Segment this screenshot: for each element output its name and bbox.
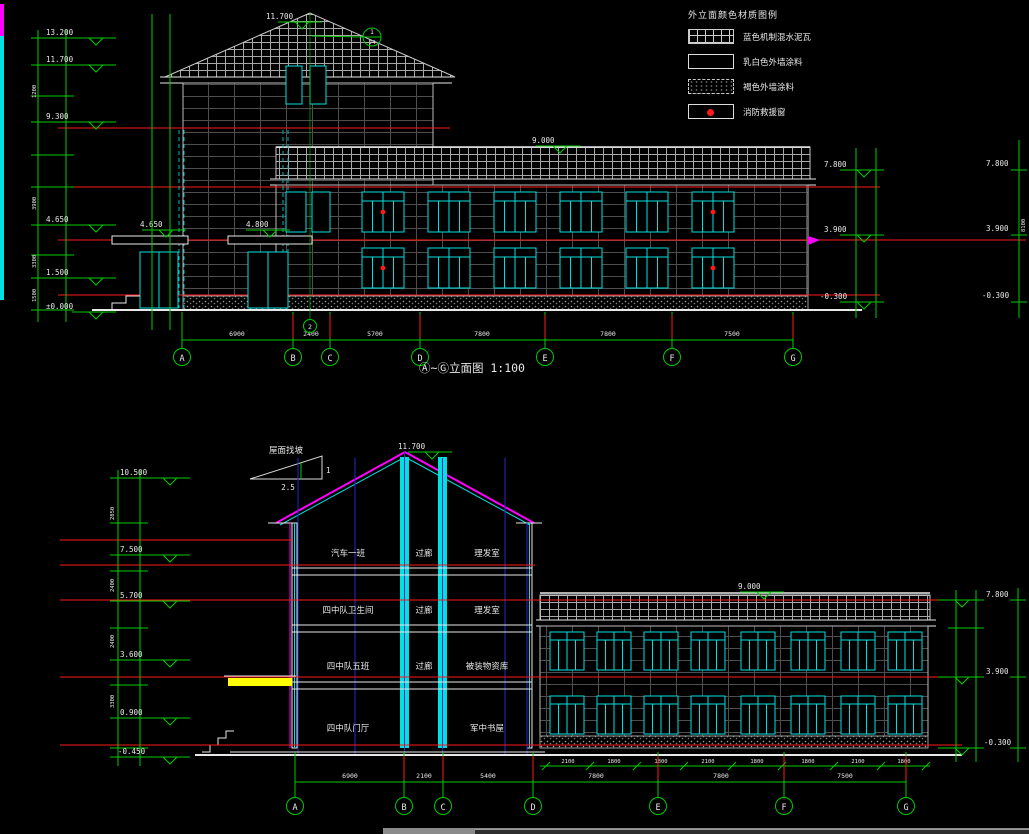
grid-dim: 7800 bbox=[600, 330, 616, 338]
legend-item-label: 褐色外墙涂料 bbox=[743, 81, 794, 93]
white-paint-swatch bbox=[688, 54, 734, 69]
chain-dim: 3300 bbox=[32, 255, 38, 268]
level-text: 0.900 bbox=[120, 708, 143, 717]
grid-dim: 7800 bbox=[588, 772, 604, 780]
wing-ridge-text: 9.000 bbox=[738, 582, 761, 591]
canopy-level-right: 4.800 bbox=[246, 220, 269, 229]
drawing-sheet: 11.700 1 J4 9.000 4.650 4.800 bbox=[0, 0, 1029, 834]
level-text: 10.500 bbox=[120, 468, 148, 477]
grid-bubble-label: D bbox=[530, 803, 535, 813]
level-text: 7.800 bbox=[986, 159, 1009, 168]
room-label: 军中书屋 bbox=[470, 723, 505, 734]
level-text: 3.900 bbox=[986, 224, 1009, 233]
top-elevation-title: Ⓐ~Ⓖ立面图 1:100 bbox=[419, 361, 525, 375]
room-label: 理发室 bbox=[474, 605, 500, 616]
roof-tile-swatch bbox=[688, 29, 734, 44]
level-text: 7.500 bbox=[120, 545, 143, 554]
room-label: 过廊 bbox=[415, 661, 433, 672]
chain-dim: 2400 bbox=[110, 635, 116, 648]
chain-dim: 8100 bbox=[1021, 219, 1027, 232]
grid-dim: 7500 bbox=[724, 330, 740, 338]
horizontal-scrollbar-track[interactable] bbox=[383, 828, 1029, 834]
level-text: 3.600 bbox=[120, 650, 143, 659]
level-text: 7.800 bbox=[824, 160, 847, 169]
grid-bubble-label: B bbox=[290, 354, 295, 364]
level-text: ±0.000 bbox=[46, 302, 74, 311]
grid-bubble-label: A bbox=[179, 354, 184, 364]
window-dim: 2100 bbox=[701, 759, 714, 765]
level-text: 3.900 bbox=[986, 667, 1009, 676]
room-label: 四中队五班 bbox=[327, 661, 370, 672]
window-dim: 1800 bbox=[897, 759, 910, 765]
room-label: 汽车一班 bbox=[331, 548, 366, 559]
room-label: 过廊 bbox=[415, 605, 433, 616]
material-legend: 外立面颜色材质图例 蓝色机制混水泥瓦 乳白色外墙涂料 褐色外墙涂料 消防救援窗 bbox=[688, 8, 838, 128]
legend-item-label: 消防救援窗 bbox=[743, 106, 786, 118]
window-dim: 1800 bbox=[654, 759, 667, 765]
level-text: -0.300 bbox=[982, 291, 1010, 300]
roof-slope-detail: 屋面找坡 1 2.5 bbox=[250, 445, 331, 492]
legend-item: 蓝色机制混水泥瓦 bbox=[688, 28, 838, 45]
room-label: 被装物资库 bbox=[466, 661, 509, 672]
grid-bubble-label: E bbox=[542, 354, 547, 364]
grid-bubble-label: G bbox=[903, 803, 908, 813]
level-text: -0.300 bbox=[984, 738, 1012, 747]
grid-lines: 6900 2400 5700 7800 7800 7500 bbox=[182, 312, 793, 348]
right-level-markers: 7.800 3.900 -0.300 bbox=[938, 590, 1012, 755]
window-dim: 1800 bbox=[607, 759, 620, 765]
grid-dim: 7800 bbox=[474, 330, 490, 338]
top-elevation-drawing: 11.700 1 J4 9.000 4.650 4.800 bbox=[31, 12, 1027, 375]
level-text: 4.650 bbox=[46, 215, 69, 224]
ridge-level-text: 11.700 bbox=[266, 12, 294, 21]
dark-paint-swatch bbox=[688, 79, 734, 94]
cad-canvas: 11.700 1 J4 9.000 4.650 4.800 bbox=[0, 0, 1029, 834]
chain-dim: 1200 bbox=[32, 85, 38, 98]
window-dim: 1800 bbox=[750, 759, 763, 765]
grid-dim: 7800 bbox=[713, 772, 729, 780]
left-level-markers: 13.200 11.700 9.300 4.650 1.500 ±0.000 bbox=[46, 28, 116, 319]
legend-item: 乳白色外墙涂料 bbox=[688, 53, 838, 70]
section-wing bbox=[536, 593, 936, 748]
room-label: 四中队卫生间 bbox=[322, 605, 373, 616]
slope-label: 屋面找坡 bbox=[269, 445, 304, 456]
legend-item-label: 乳白色外墙涂料 bbox=[743, 56, 803, 68]
room-labels: 汽车一班 过廊 理发室 四中队卫生间 过廊 理发室 四中队五班 过廊 被装物资库… bbox=[322, 548, 508, 734]
grid-dim: 5400 bbox=[480, 772, 496, 780]
entry-steps bbox=[202, 731, 234, 752]
room-label: 理发室 bbox=[474, 548, 500, 559]
level-text: 9.300 bbox=[46, 112, 69, 121]
callout-number: 1 bbox=[370, 28, 374, 36]
grid-dim: 2100 bbox=[416, 772, 432, 780]
grid-dim: 5700 bbox=[367, 330, 383, 338]
grid-dim: 7500 bbox=[837, 772, 853, 780]
axis-bubble-label: 2 bbox=[308, 323, 312, 331]
room-label: 四中队门厅 bbox=[327, 723, 370, 734]
canopy-slab-cut bbox=[228, 678, 292, 686]
grid-bubble-label: C bbox=[327, 354, 332, 364]
grid-bubble-label: G bbox=[790, 354, 795, 364]
grid-dim: 6900 bbox=[342, 772, 358, 780]
section-ridge-marker: 11.700 bbox=[398, 442, 452, 459]
chain-dim: 2850 bbox=[110, 507, 116, 520]
level-text: 5.700 bbox=[120, 591, 143, 600]
wing-ridge-text: 9.000 bbox=[532, 136, 555, 145]
level-text: 3.900 bbox=[824, 225, 847, 234]
right-marker-arrow bbox=[808, 236, 820, 245]
level-text: 1.500 bbox=[46, 268, 69, 277]
rescue-window-swatch bbox=[688, 104, 734, 119]
left-chain-dims: 1200 3900 3300 1500 bbox=[32, 85, 38, 302]
section-drawing: 屋面找坡 1 2.5 11.700 bbox=[60, 442, 1026, 815]
ridge-level-text: 11.700 bbox=[398, 442, 426, 451]
window-dim-line: 2100 1800 1800 2100 1800 1800 2100 1800 bbox=[540, 759, 930, 770]
entry-steps bbox=[98, 296, 140, 310]
window-dim: 2100 bbox=[851, 759, 864, 765]
grid-bubble-label: E bbox=[655, 803, 660, 813]
chain-dim: 2400 bbox=[110, 579, 116, 592]
window-dim: 2100 bbox=[561, 759, 574, 765]
grid-bubbles: A B C D E F G 2 bbox=[174, 320, 802, 366]
slope-run: 2.5 bbox=[281, 483, 295, 492]
level-text: -0.300 bbox=[820, 292, 848, 301]
legend-item-label: 蓝色机制混水泥瓦 bbox=[743, 31, 811, 43]
legend-title: 外立面颜色材质图例 bbox=[688, 8, 838, 21]
grid-bubble-label: F bbox=[781, 803, 786, 813]
slope-rise: 1 bbox=[326, 466, 331, 475]
chain-dim: 3900 bbox=[32, 197, 38, 210]
legend-item: 褐色外墙涂料 bbox=[688, 78, 838, 95]
grid-bubble-label: B bbox=[401, 803, 406, 813]
section-structure bbox=[230, 452, 545, 756]
chain-dim: 3300 bbox=[110, 695, 116, 708]
grid-bubble-label: A bbox=[292, 803, 297, 813]
grid-bubble-label: F bbox=[669, 354, 674, 364]
level-text: 11.700 bbox=[46, 55, 74, 64]
callout-sheet: J4 bbox=[369, 40, 376, 46]
legend-item: 消防救援窗 bbox=[688, 103, 838, 120]
horizontal-scrollbar-thumb[interactable] bbox=[475, 829, 1029, 834]
right-level-markers: 7.800 3.900 -0.300 7.800 3.900 -0.300 81… bbox=[820, 159, 1027, 309]
rescue-dot-icon bbox=[707, 109, 714, 116]
grid-dim: 6900 bbox=[229, 330, 245, 338]
left-chain-dims: 2850 2400 2400 3300 bbox=[110, 507, 116, 708]
left-level-markers: 10.500 7.500 5.700 3.600 0.900 -0.450 bbox=[118, 468, 190, 764]
level-text: -0.450 bbox=[118, 747, 146, 756]
window-dim: 1800 bbox=[801, 759, 814, 765]
chain-dim: 1500 bbox=[32, 289, 38, 302]
level-text: 13.200 bbox=[46, 28, 74, 37]
grid-bubbles: A B C D E F G bbox=[287, 798, 915, 815]
grid-bubble-label: C bbox=[440, 803, 445, 813]
level-text: 7.800 bbox=[986, 590, 1009, 599]
room-label: 过廊 bbox=[415, 548, 433, 559]
